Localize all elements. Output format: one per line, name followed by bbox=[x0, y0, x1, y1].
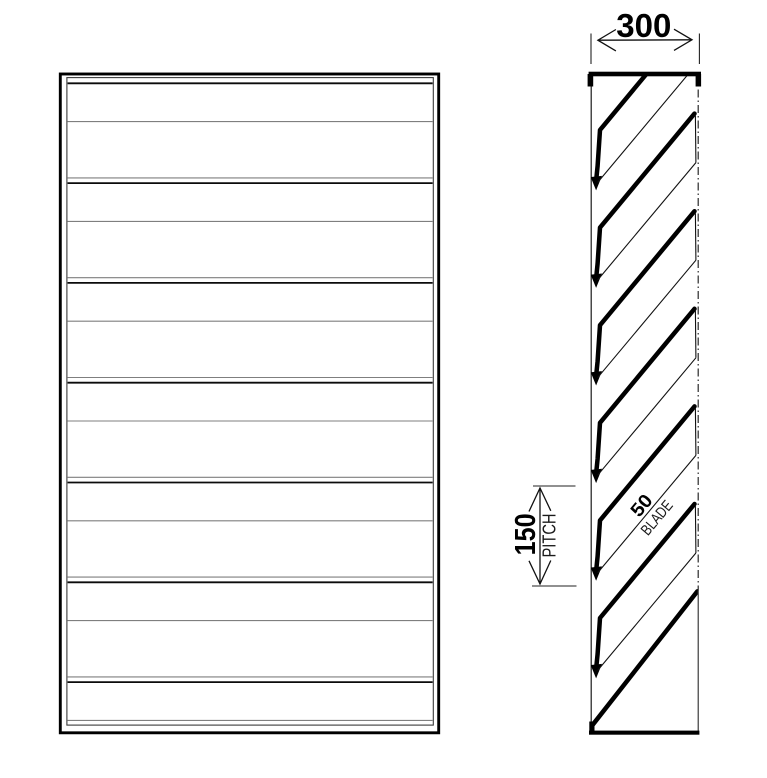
svg-text:150: 150 bbox=[510, 513, 542, 555]
svg-text:300: 300 bbox=[616, 7, 671, 44]
svg-text:PITCH: PITCH bbox=[538, 514, 559, 558]
